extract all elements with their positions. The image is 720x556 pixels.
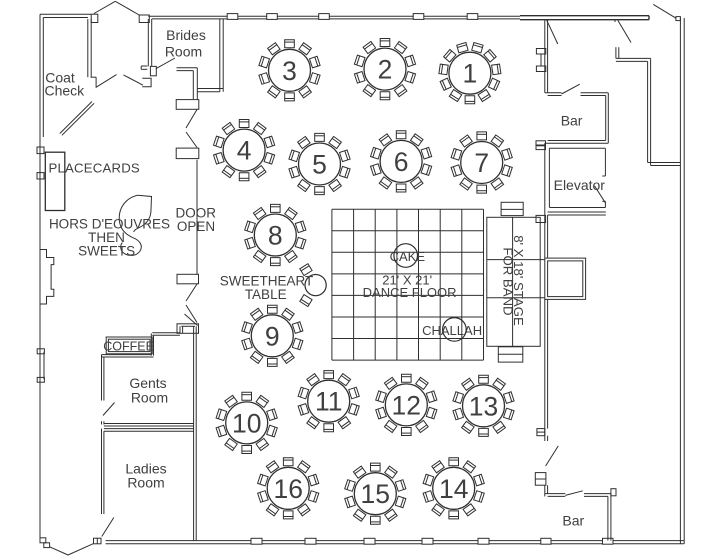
svg-text:4: 4 bbox=[237, 136, 252, 166]
svg-text:CHALLAH: CHALLAH bbox=[422, 323, 482, 338]
svg-text:14: 14 bbox=[439, 474, 468, 504]
svg-text:COFFEE: COFFEE bbox=[103, 339, 154, 353]
svg-text:PLACECARDS: PLACECARDS bbox=[49, 161, 140, 176]
svg-text:TABLE: TABLE bbox=[245, 287, 287, 302]
svg-text:Room: Room bbox=[131, 389, 168, 405]
svg-text:13: 13 bbox=[469, 391, 498, 421]
svg-text:Brides: Brides bbox=[166, 27, 206, 43]
svg-text:9: 9 bbox=[265, 321, 280, 351]
svg-text:Room: Room bbox=[127, 474, 164, 490]
svg-text:DANCE FLOOR: DANCE FLOOR bbox=[363, 285, 457, 300]
svg-text:FOR BAND: FOR BAND bbox=[501, 247, 516, 315]
svg-text:5: 5 bbox=[312, 150, 327, 180]
svg-text:12: 12 bbox=[392, 390, 421, 420]
svg-text:Room: Room bbox=[165, 44, 202, 60]
svg-text:SWEETS: SWEETS bbox=[78, 243, 135, 258]
svg-text:Bar: Bar bbox=[562, 513, 584, 529]
svg-text:10: 10 bbox=[232, 408, 261, 438]
svg-text:1: 1 bbox=[463, 59, 478, 89]
svg-text:Check: Check bbox=[44, 83, 85, 99]
svg-text:OPEN: OPEN bbox=[177, 219, 215, 234]
svg-text:2: 2 bbox=[378, 55, 393, 85]
svg-text:Elevator: Elevator bbox=[554, 177, 606, 193]
svg-text:7: 7 bbox=[474, 148, 489, 178]
svg-text:3: 3 bbox=[282, 56, 297, 86]
svg-text:11: 11 bbox=[315, 387, 343, 417]
svg-text:Bar: Bar bbox=[561, 112, 583, 128]
svg-text:8: 8 bbox=[268, 221, 283, 251]
svg-text:6: 6 bbox=[394, 147, 409, 177]
svg-text:16: 16 bbox=[273, 474, 302, 504]
svg-text:15: 15 bbox=[361, 479, 390, 509]
